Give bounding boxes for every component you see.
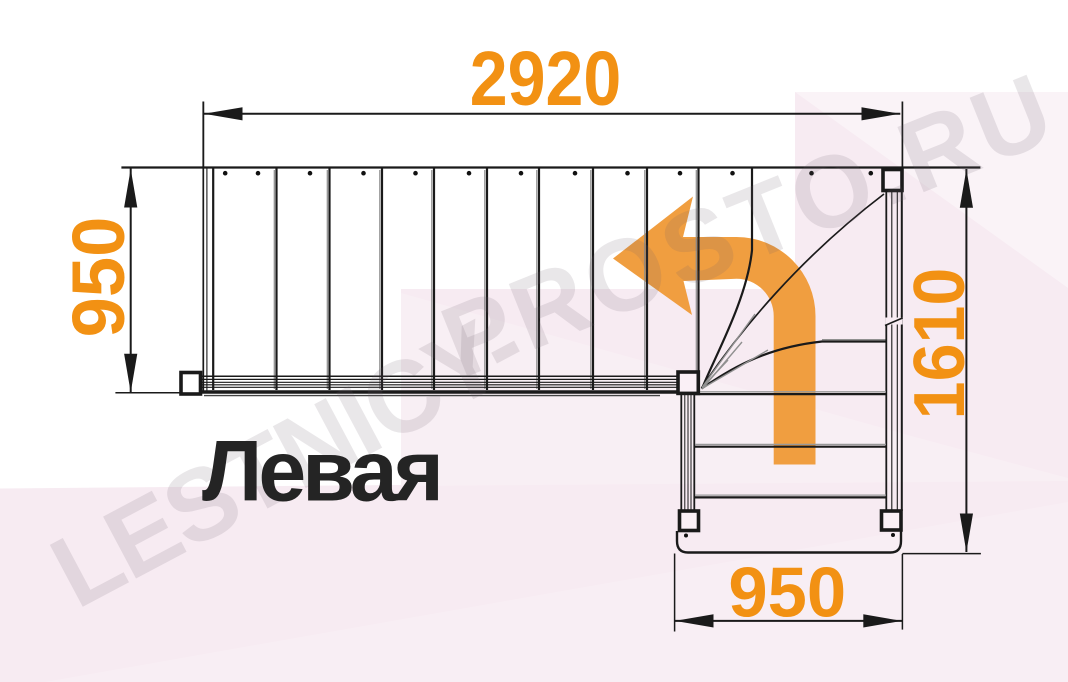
svg-text:950: 950 [57,217,140,338]
svg-text:950: 950 [728,553,846,632]
svg-text:1610: 1610 [898,268,979,420]
svg-text:2920: 2920 [470,36,622,122]
svg-text:Левая: Левая [202,424,440,520]
